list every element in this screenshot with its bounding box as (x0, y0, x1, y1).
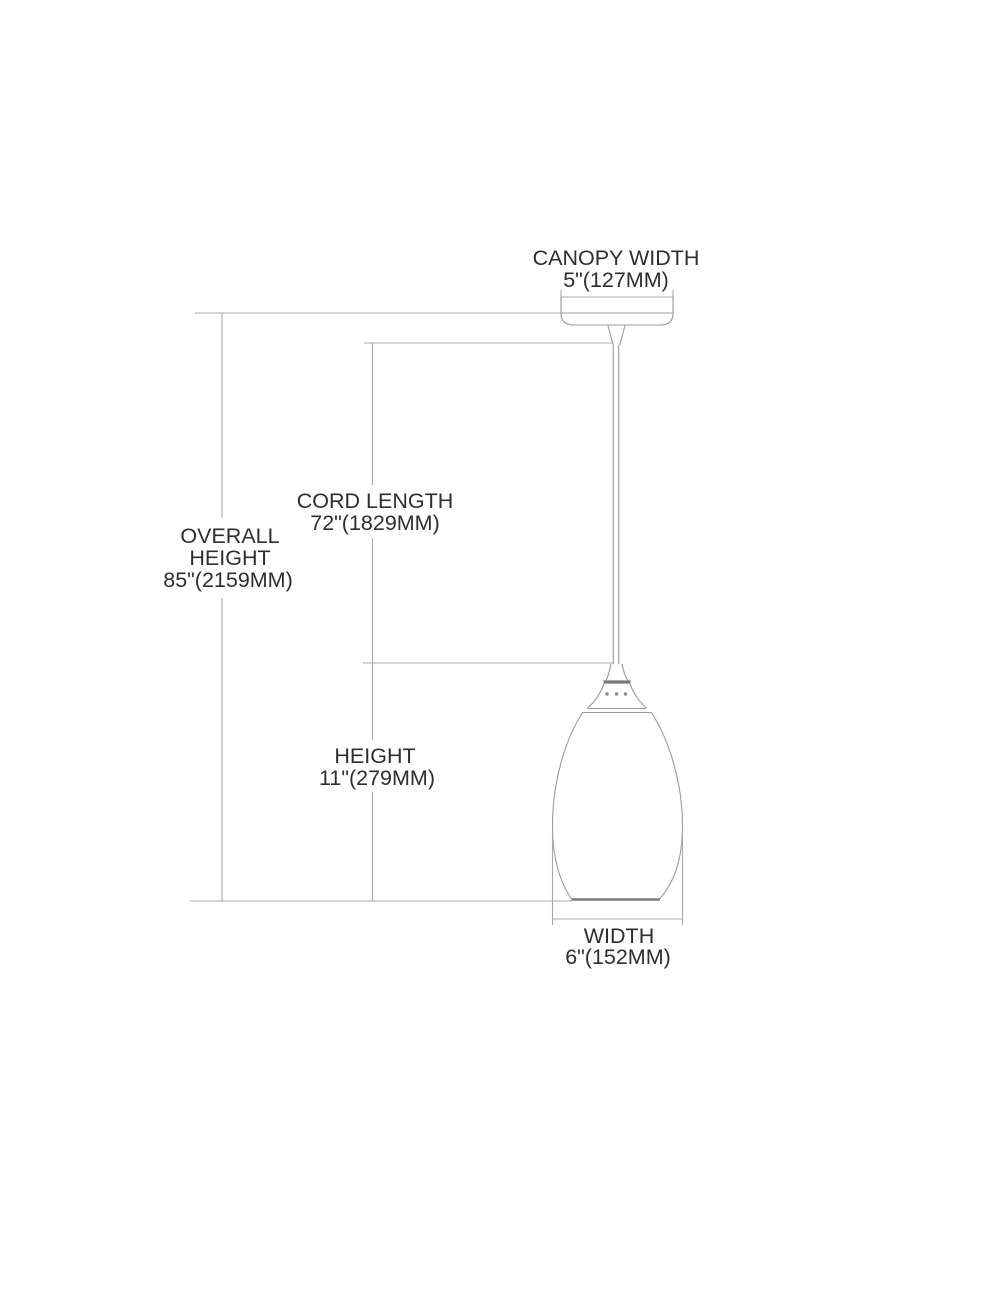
pendant-fixture (553, 290, 683, 900)
socket-cone-left (588, 684, 605, 708)
socket-screw-dot (615, 692, 618, 695)
overall-height-title-line2: HEIGHT (189, 546, 270, 570)
canopy-width-title: CANOPY WIDTH (533, 246, 700, 270)
cord (613, 345, 618, 664)
height-value: 11"(279MM) (319, 766, 435, 790)
height-title: HEIGHT (334, 744, 415, 768)
socket-neck-right (622, 664, 628, 681)
canopy (561, 290, 673, 345)
socket-neck-left (606, 664, 611, 681)
cord-length-value: 72"(1829MM) (310, 511, 440, 535)
dimension-height: HEIGHT 11"(279MM) (319, 663, 435, 901)
canopy-outline (561, 297, 673, 325)
canopy-width-value: 5"(127MM) (563, 268, 669, 292)
shade-body-left (553, 713, 583, 900)
pendant-dimension-diagram: CANOPY WIDTH 5"(127MM) OVERALL HEIGHT 85… (0, 0, 1000, 1294)
socket-cone-right (630, 684, 647, 708)
overall-height-value: 85"(2159MM) (163, 568, 293, 592)
socket-screw-dot (605, 692, 608, 695)
cord-grip-right (620, 326, 625, 346)
socket-holder (588, 664, 647, 708)
width-value: 6"(152MM) (565, 945, 671, 969)
dimension-diagram-page: CANOPY WIDTH 5"(127MM) OVERALL HEIGHT 85… (0, 0, 1000, 1294)
socket-screw-dot (624, 692, 627, 695)
shade-body-right (652, 713, 683, 900)
glass-shade (553, 709, 683, 900)
dimension-overall-height: OVERALL HEIGHT 85"(2159MM) (163, 313, 572, 901)
cord-grip (608, 326, 613, 346)
dimension-canopy-width: CANOPY WIDTH 5"(127MM) (533, 246, 700, 292)
overall-height-title-line1: OVERALL (180, 524, 279, 548)
cord-length-title: CORD LENGTH (297, 489, 453, 513)
dimension-cord-length: CORD LENGTH 72"(1829MM) (297, 343, 613, 663)
